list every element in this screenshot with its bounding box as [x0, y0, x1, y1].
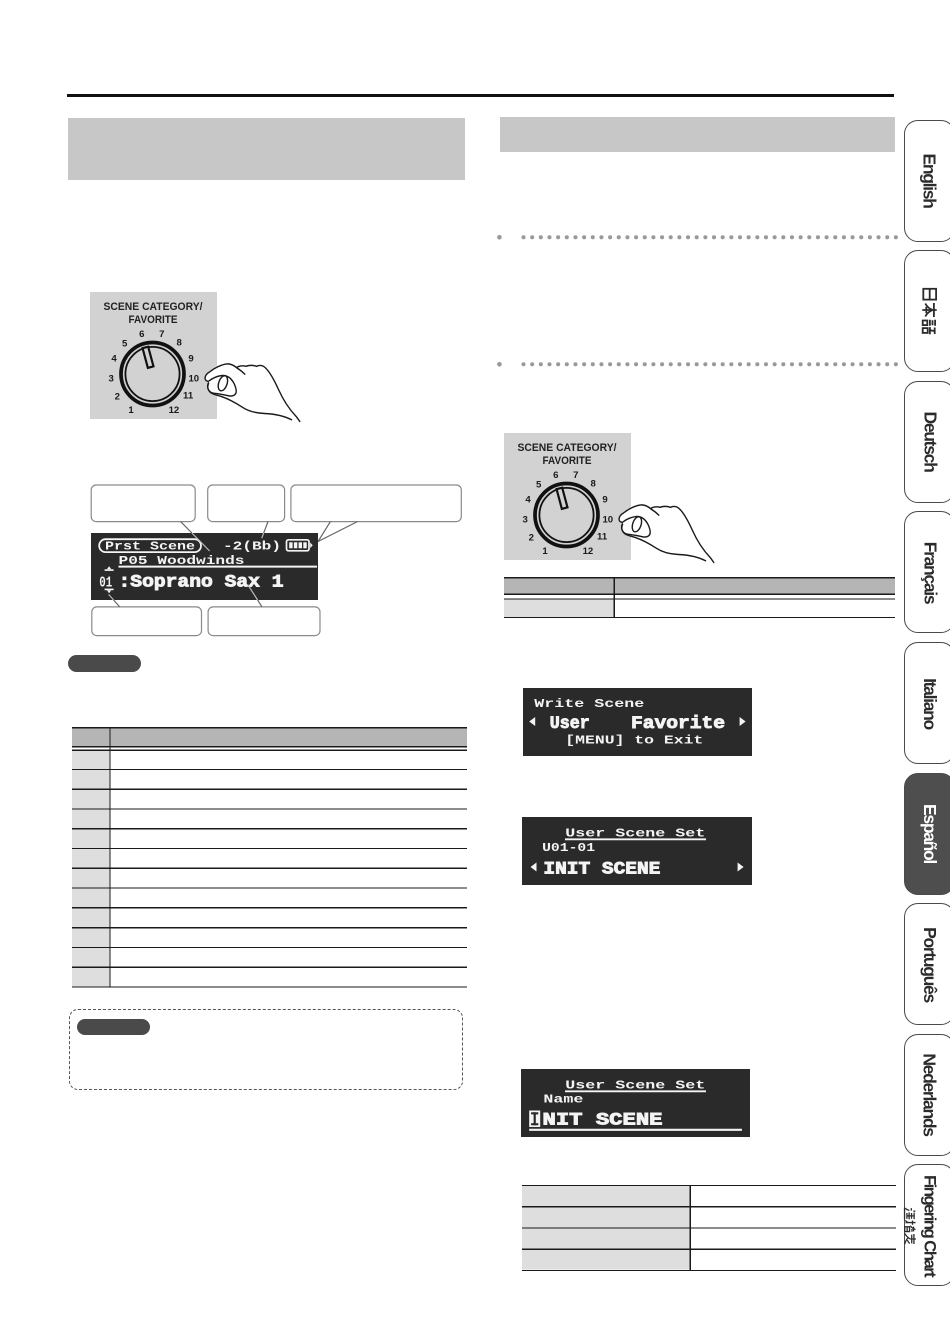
svg-text:[MENU] to Exit: [MENU] to Exit: [565, 734, 703, 748]
svg-text::Soprano Sax 1: :Soprano Sax 1: [119, 572, 284, 592]
svg-text:INIT SCENE: INIT SCENE: [543, 859, 660, 879]
svg-text:U01-01: U01-01: [542, 841, 595, 855]
svg-text:NIT SCENE: NIT SCENE: [543, 1110, 663, 1130]
svg-text:-2(Bb): -2(Bb): [223, 540, 281, 554]
svg-text:01: 01: [99, 575, 112, 591]
svg-text:Write Scene: Write Scene: [534, 697, 644, 711]
svg-text:Favorite: Favorite: [631, 714, 725, 734]
svg-text:User Scene Set: User Scene Set: [565, 1078, 705, 1092]
svg-text:User Scene Set: User Scene Set: [565, 826, 705, 840]
svg-text:User: User: [550, 714, 590, 734]
svg-text:Prst Scene: Prst Scene: [105, 540, 195, 554]
svg-text:Name: Name: [543, 1093, 583, 1107]
